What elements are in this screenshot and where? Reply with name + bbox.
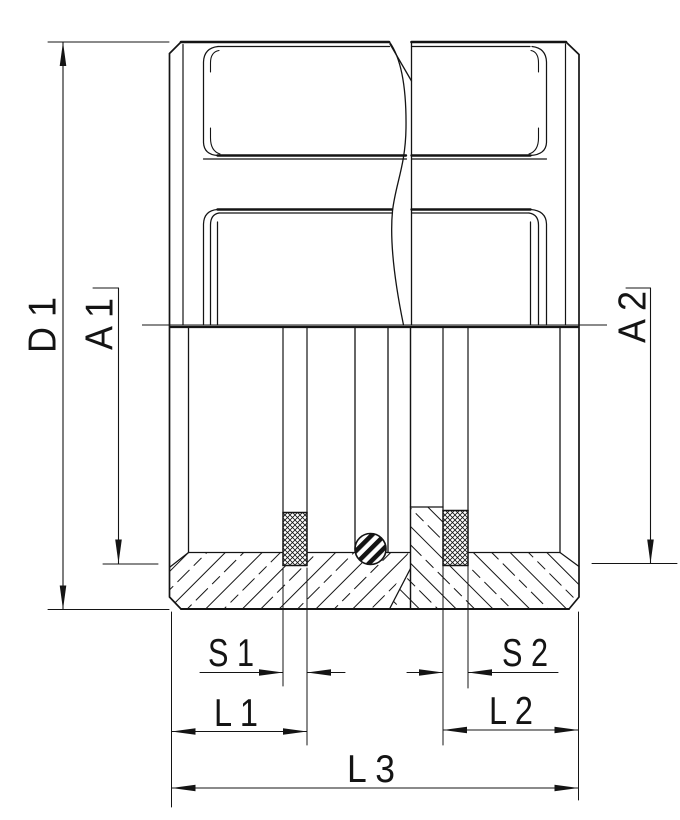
arrow-l1-left — [172, 728, 196, 735]
rib2-left-end — [204, 210, 220, 326]
arrow-l2-left — [443, 727, 467, 733]
technical-drawing-page: D 1 A 1 A 2 S 1 L 1 S 2 L 2 L 3 — [0, 0, 680, 820]
thread-channel-lines — [283, 327, 468, 513]
coupling-section-drawing: D 1 A 1 A 2 S 1 L 1 S 2 L 2 L 3 — [0, 0, 680, 820]
arrow-s2-right — [468, 669, 492, 676]
rib2-right-end — [529, 210, 547, 326]
dim-label-l3: L 3 — [347, 748, 395, 791]
arrow-a2-down — [647, 540, 654, 564]
break-curve — [390, 42, 407, 325]
arrow-l3-left — [172, 785, 196, 791]
right-flange-hatch — [390, 507, 580, 609]
end-band-lines — [183, 44, 566, 325]
dim-label-a1: A 1 — [79, 298, 122, 350]
o-ring-seal — [355, 534, 386, 565]
arrow-d1-down — [60, 586, 67, 610]
arrow-a1-down — [115, 540, 122, 564]
arrow-s1-right — [307, 669, 331, 676]
arrow-s2-left — [419, 669, 443, 676]
dim-label-a2: A 2 — [612, 291, 655, 343]
section-divide-line — [142, 325, 607, 327]
grip-ribs — [204, 47, 547, 326]
thread-insert-right-knurl — [443, 511, 468, 566]
dim-label-l2: L 2 — [489, 690, 533, 733]
bore-walls — [189, 327, 561, 553]
break-slant — [390, 44, 412, 81]
arrow-l2-right — [555, 727, 579, 733]
arrow-l3-right — [555, 785, 579, 791]
dimension-lines — [48, 42, 677, 807]
arrow-l1-right — [283, 728, 307, 735]
break-lines — [390, 42, 412, 325]
arrow-d1-up — [60, 42, 67, 66]
rib1-left-end-inner — [211, 51, 221, 155]
rib1-right-end-inner — [529, 51, 539, 155]
dim-label-d1: D 1 — [22, 297, 65, 353]
dim-label-l1: L 1 — [214, 692, 258, 735]
thread-insert-left-knurl — [283, 513, 307, 566]
dim-label-s1: S 1 — [208, 632, 254, 675]
dim-label-s2: S 2 — [502, 632, 548, 675]
arrow-s1-left — [259, 669, 283, 676]
